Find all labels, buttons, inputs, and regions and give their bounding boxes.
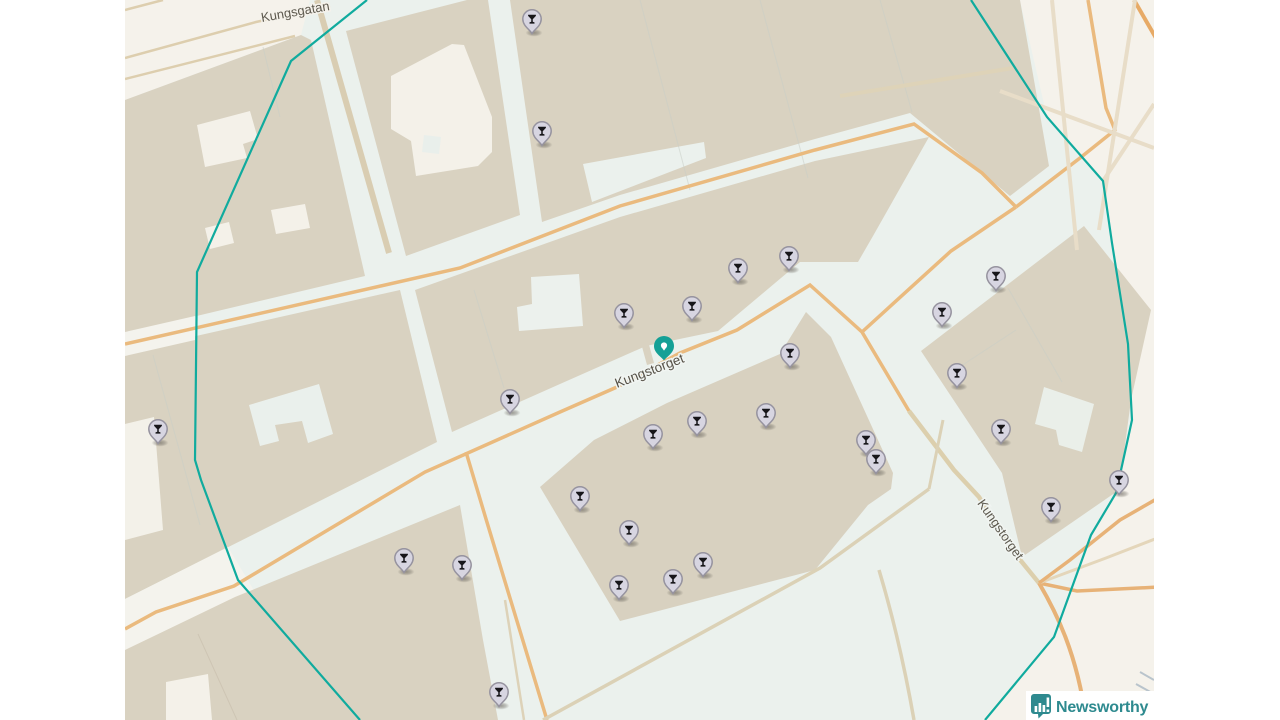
svg-text:Newsworthy: Newsworthy: [1056, 699, 1149, 716]
